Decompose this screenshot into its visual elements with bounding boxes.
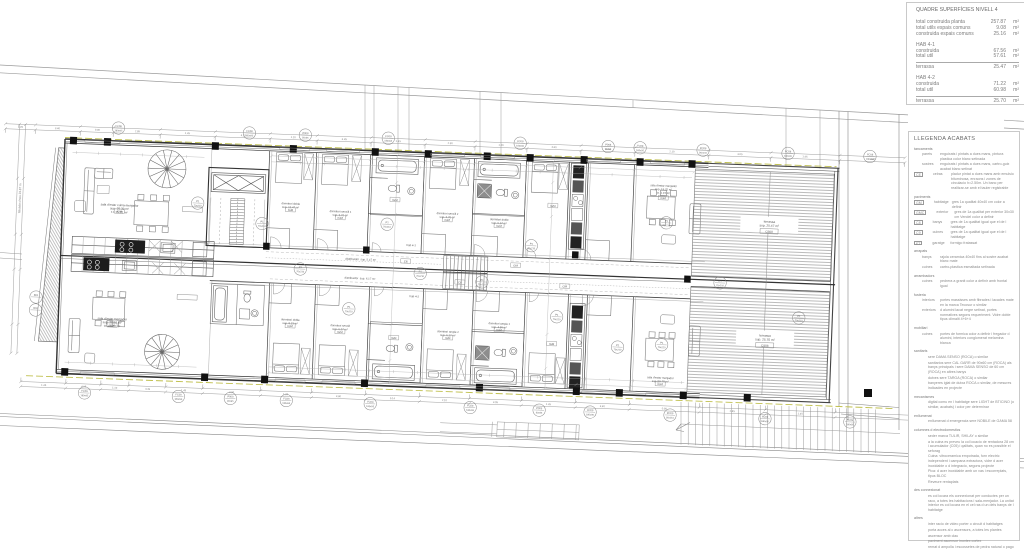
svg-text:P1: P1 [385, 220, 389, 224]
svg-text:70x210: 70x210 [716, 284, 725, 287]
svg-text:3.35: 3.35 [342, 137, 348, 141]
svg-text:IGM: IGM [657, 382, 663, 386]
svg-text:3.60: 3.60 [336, 394, 342, 398]
svg-text:90x95: 90x95 [536, 411, 543, 414]
svg-text:0.90: 0.90 [95, 128, 101, 132]
svg-text:FC08: FC08 [637, 144, 644, 148]
svg-text:3.40: 3.40 [55, 126, 61, 130]
svg-text:B02: B02 [33, 306, 38, 310]
svg-text:IGM: IGM [117, 209, 123, 213]
svg-text:FC08: FC08 [385, 134, 392, 138]
svg-text:IGM: IGM [287, 324, 293, 328]
svg-text:FC08: FC08 [115, 124, 122, 128]
svg-text:180x95: 180x95 [282, 402, 291, 405]
svg-text:70x210: 70x210 [662, 224, 671, 227]
svg-text:1.45: 1.45 [798, 412, 804, 416]
svg-text:IGM: IGM [392, 198, 398, 202]
svg-text:2.85: 2.85 [730, 409, 736, 413]
svg-text:P1: P1 [419, 269, 423, 273]
svg-text:FC09: FC09 [175, 392, 182, 396]
svg-text:P1: P1 [196, 199, 200, 203]
svg-text:FC09: FC09 [847, 418, 854, 422]
svg-text:180x95: 180x95 [586, 413, 595, 416]
svg-text:IGM: IGM [496, 328, 502, 332]
svg-text:hab 4-2: hab 4-2 [410, 294, 420, 298]
svg-text:GM: GM [562, 284, 567, 288]
svg-text:70x210: 70x210 [795, 319, 804, 322]
svg-text:1.45: 1.45 [18, 125, 24, 129]
svg-text:FC08: FC08 [246, 129, 253, 133]
svg-text:IGM: IGM [549, 342, 555, 346]
svg-text:180x95: 180x95 [866, 158, 875, 161]
svg-text:FC09: FC09 [367, 400, 374, 404]
svg-text:IGM: IGM [496, 224, 502, 228]
svg-text:2.85: 2.85 [135, 129, 141, 133]
svg-text:2.10: 2.10 [669, 149, 675, 153]
svg-text:70x210: 70x210 [658, 346, 667, 349]
svg-text:3.60: 3.60 [551, 145, 557, 149]
svg-text:1.45: 1.45 [546, 402, 552, 406]
svg-text:PC09: PC09 [667, 411, 674, 415]
svg-text:70x210: 70x210 [553, 318, 562, 321]
svg-text:sup. 25.47 m²: sup. 25.47 m² [759, 223, 779, 228]
svg-text:2.90: 2.90 [448, 141, 454, 145]
svg-text:C8: C8 [404, 259, 408, 263]
svg-text:180x95: 180x95 [366, 405, 375, 408]
svg-text:GM: GM [513, 263, 518, 267]
svg-text:t.t. 1.15 m²: t.t. 1.15 m² [657, 191, 671, 196]
svg-text:90x95: 90x95 [302, 136, 309, 139]
svg-text:P009: P009 [536, 406, 543, 410]
svg-text:sup. 25.70 m²: sup. 25.70 m² [755, 337, 775, 342]
svg-text:70x210: 70x210 [478, 283, 487, 286]
svg-text:5.14: 5.14 [390, 396, 396, 400]
svg-text:3.05: 3.05 [737, 152, 743, 156]
svg-text:C8: C8 [458, 280, 462, 284]
svg-text:1.45: 1.45 [181, 388, 187, 392]
svg-text:70x210: 70x210 [258, 225, 267, 228]
svg-text:180x95: 180x95 [846, 423, 855, 426]
svg-text:FC09: FC09 [283, 396, 290, 400]
svg-text:70x210: 70x210 [613, 348, 622, 351]
svg-text:1.10: 1.10 [291, 135, 297, 139]
svg-text:1.45: 1.45 [396, 139, 402, 143]
svg-text:3.05: 3.05 [493, 400, 499, 404]
svg-text:180x95: 180x95 [174, 398, 183, 401]
svg-text:P1: P1 [347, 305, 351, 309]
svg-text:P008: P008 [605, 142, 612, 146]
svg-text:FC08: FC08 [517, 139, 524, 143]
svg-text:P1: P1 [299, 265, 303, 269]
svg-text:P1: P1 [616, 343, 620, 347]
svg-text:FC08: FC08 [867, 152, 874, 156]
svg-text:IGM: IGM [338, 216, 344, 220]
svg-text:IGM: IGM [109, 323, 115, 327]
svg-text:3.40: 3.40 [600, 404, 606, 408]
svg-text:IGM: IGM [445, 336, 451, 340]
svg-text:IGM: IGM [288, 208, 294, 212]
svg-text:70x210: 70x210 [416, 275, 425, 278]
svg-text:IGM: IGM [391, 336, 397, 340]
svg-text:3.35: 3.35 [145, 387, 151, 391]
svg-text:180x95: 180x95 [636, 149, 645, 152]
svg-text:B01: B01 [34, 293, 39, 297]
svg-text:90x210: 90x210 [666, 416, 675, 419]
svg-text:FC09: FC09 [587, 408, 594, 412]
svg-text:1.10: 1.10 [112, 386, 118, 390]
svg-text:PC08: PC08 [700, 146, 707, 150]
svg-text:CS08: CS08 [761, 344, 769, 348]
svg-text:P1: P1 [665, 219, 669, 223]
svg-text:hab 4-1: hab 4-1 [406, 243, 416, 247]
svg-text:90x95: 90x95 [227, 400, 234, 403]
svg-text:70x210: 70x210 [345, 310, 354, 313]
svg-text:IGM: IGM [337, 330, 343, 334]
svg-text:P008: P008 [302, 131, 309, 135]
svg-text:90x210: 90x210 [699, 151, 708, 154]
svg-text:180x95: 180x95 [114, 129, 123, 132]
svg-text:180x95: 180x95 [784, 155, 793, 158]
svg-text:P009: P009 [227, 394, 234, 398]
svg-text:FC09: FC09 [467, 403, 474, 407]
svg-text:1.20: 1.20 [499, 143, 505, 147]
svg-text:180x95: 180x95 [245, 134, 254, 137]
svg-text:70x210: 70x210 [383, 226, 392, 229]
svg-text:70x210: 70x210 [194, 204, 203, 207]
svg-text:P1: P1 [660, 341, 664, 345]
svg-text:P1: P1 [555, 313, 559, 317]
svg-text:1.45: 1.45 [185, 131, 191, 135]
svg-text:IGM: IGM [445, 218, 451, 222]
svg-text:CS08: CS08 [765, 230, 773, 234]
svg-text:P1: P1 [530, 242, 534, 246]
svg-text:fatxada c/nou 23.87 m: fatxada c/nou 23.87 m [17, 183, 22, 213]
svg-text:180x95: 180x95 [80, 394, 89, 397]
svg-text:70x210: 70x210 [296, 270, 305, 273]
svg-text:70x210: 70x210 [527, 247, 536, 250]
svg-text:180x95: 180x95 [384, 139, 393, 142]
svg-text:2.10: 2.10 [442, 398, 448, 402]
svg-text:180x95: 180x95 [761, 420, 770, 423]
svg-text:distribuidor sup. 5.47 m²: distribuidor sup. 5.47 m² [345, 257, 376, 262]
svg-text:FC09: FC09 [81, 389, 88, 393]
svg-text:P1: P1 [260, 219, 264, 223]
svg-text:90x95: 90x95 [605, 148, 612, 151]
svg-text:FC09: FC09 [762, 415, 769, 419]
svg-text:180x95: 180x95 [516, 144, 525, 147]
svg-text:1.45: 1.45 [41, 383, 47, 387]
svg-text:distribuidor sup. 6.17 m²: distribuidor sup. 6.17 m² [345, 276, 376, 281]
svg-text:P1: P1 [480, 278, 484, 282]
svg-text:IGM: IGM [550, 204, 556, 208]
svg-text:180x95: 180x95 [466, 409, 475, 412]
svg-text:1.45: 1.45 [802, 154, 808, 158]
svg-text:IGM: IGM [661, 196, 667, 200]
svg-text:FC08: FC08 [785, 149, 792, 153]
